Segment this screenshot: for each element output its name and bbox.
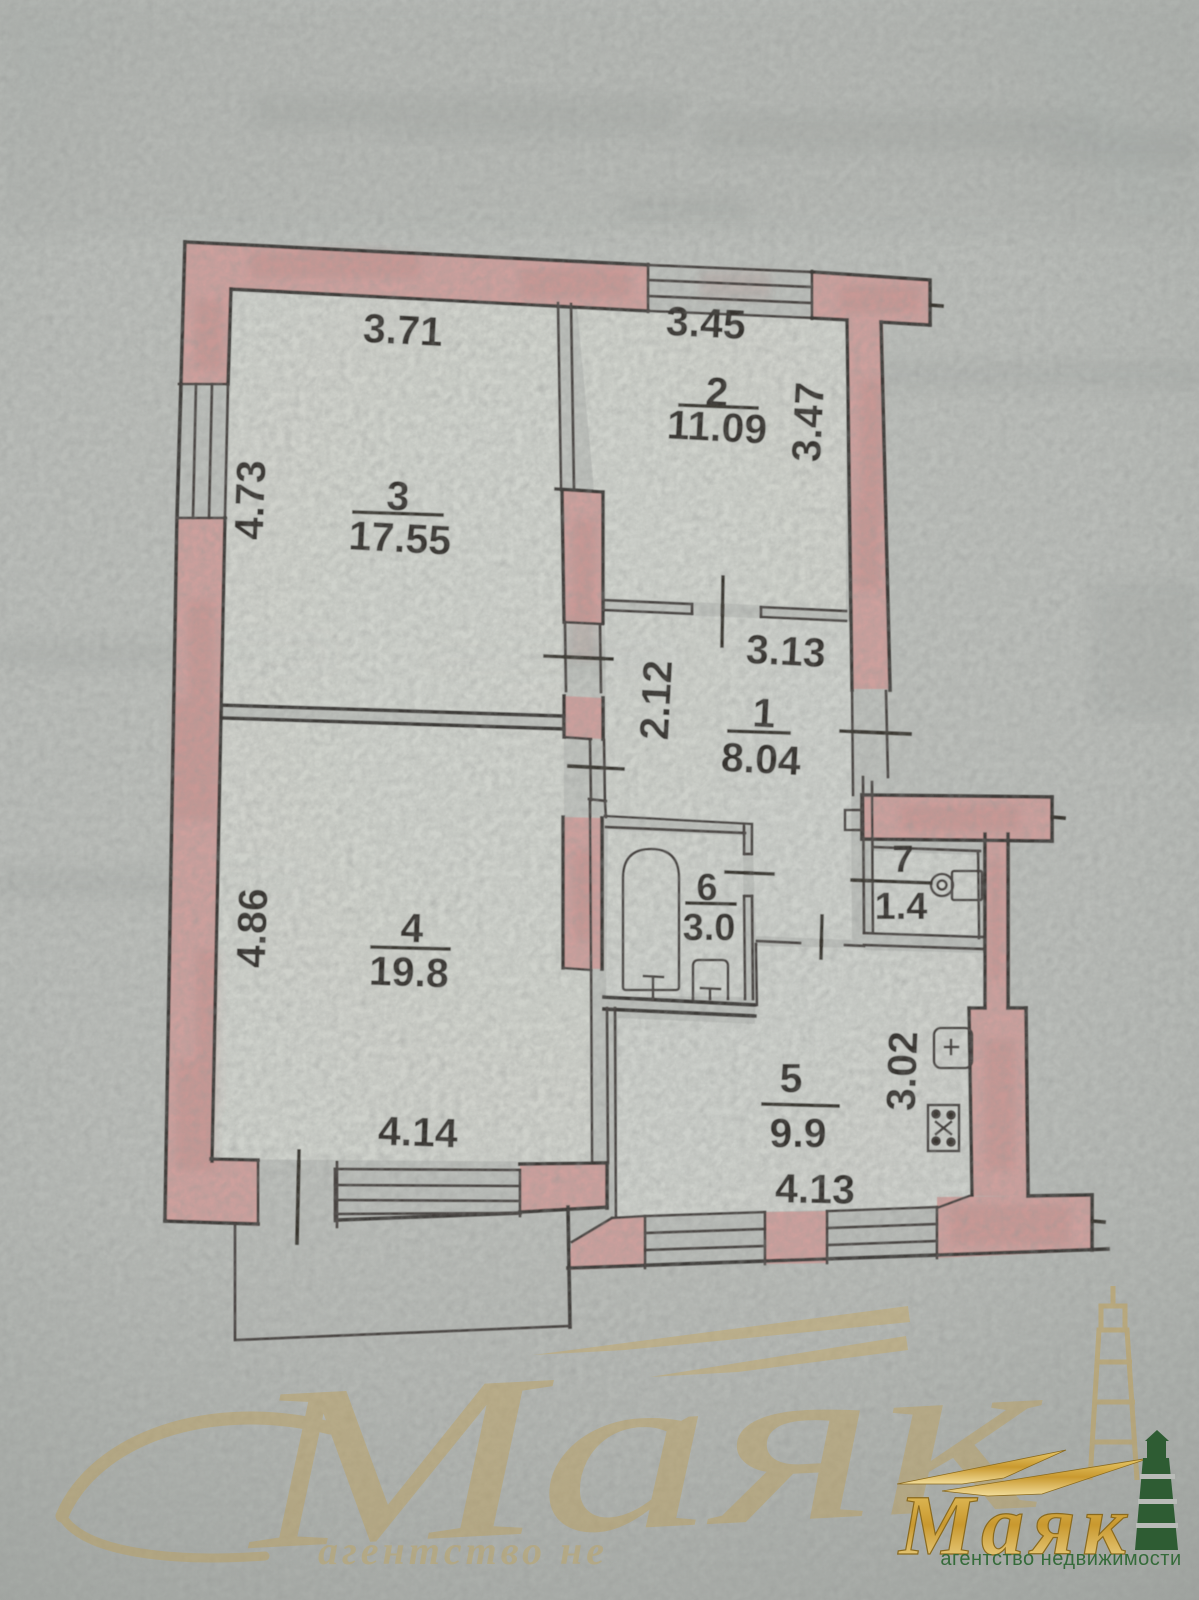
svg-text:агентство недвижимости: агентство недвижимости [940,1548,1181,1570]
svg-text:агентство не: агентство не [318,1528,608,1573]
